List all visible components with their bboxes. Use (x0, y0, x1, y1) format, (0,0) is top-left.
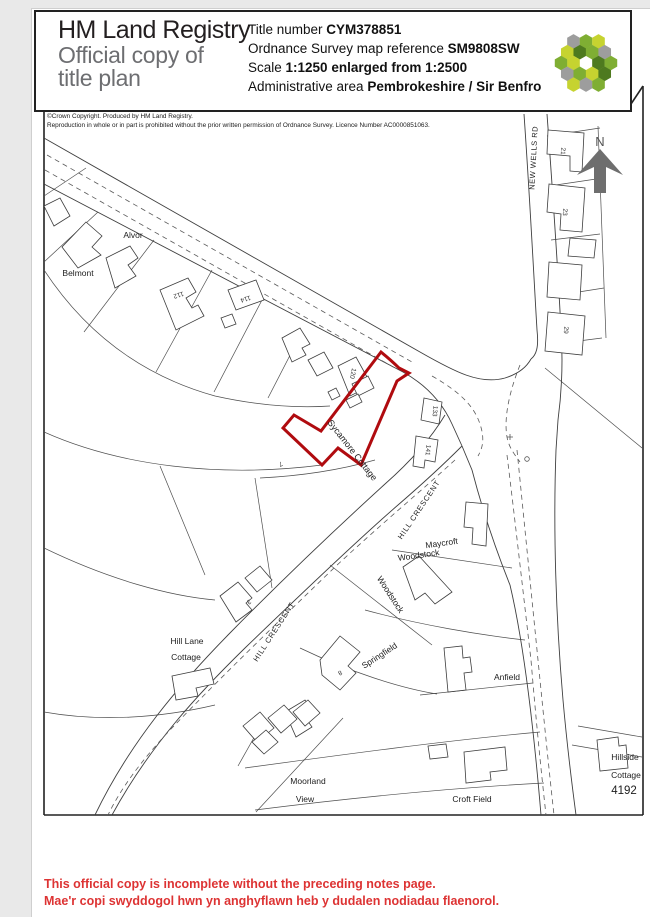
brand-title: HM Land Registry (58, 18, 250, 44)
house-number-7: 7 (277, 460, 283, 468)
north-label: N (595, 134, 604, 149)
label-new-wells-rd: NEW WELLS RD (527, 126, 539, 190)
label-springfield: Springfield (360, 640, 399, 670)
house-number-141: 141 (424, 444, 432, 456)
house-number-21: 21 (559, 147, 566, 155)
footer-warning-english: This official copy is incomplete without… (44, 876, 624, 893)
footer-warning: This official copy is incomplete without… (44, 876, 624, 911)
copyright-line2: Reproduction in whole or in part is proh… (47, 122, 430, 129)
admin-area-value: Pembrokeshire / Sir Benfro (367, 79, 541, 94)
admin-area-label: Administrative area (248, 79, 367, 94)
title-number-label: Title number (248, 22, 326, 37)
os-ref-value: SM9808SW (448, 41, 520, 56)
title-number-value: CYM378851 (326, 22, 401, 37)
copyright-line1: ©Crown Copyright. Produced by HM Land Re… (47, 112, 193, 120)
label-woodstock-2: Woodstock (375, 574, 407, 615)
label-belmont: Belmont (62, 268, 94, 278)
hmlr-hexagon-logo-icon (548, 18, 624, 108)
label-hill-crescent-1: HILL CRESCENT (396, 478, 442, 540)
label-view: View (296, 794, 315, 804)
hmlr-brand: HM Land Registry Official copy of title … (58, 18, 250, 90)
north-arrow: N (577, 134, 623, 193)
label-hillside: Hillside (611, 752, 639, 762)
label-hillside-cottage: Cottage (611, 770, 641, 780)
os-ref-label: Ordnance Survey map reference (248, 41, 448, 56)
label-moorland: Moorland (290, 776, 326, 786)
house-number-133: 133 (431, 405, 439, 417)
label-parcel-number-4192: 4192 (611, 785, 637, 797)
document-type-line2: title plan (58, 67, 250, 90)
road-marker-cross (507, 434, 513, 440)
header-box: HM Land Registry Official copy of title … (34, 10, 632, 112)
house-number-23: 23 (561, 208, 568, 216)
scale-label: Scale (248, 60, 286, 75)
plot-boundaries-layer (44, 126, 642, 812)
label-alvor: Alvor (123, 230, 143, 240)
label-hill-lane-cottage: Cottage (171, 652, 201, 662)
footer-warning-welsh: Mae'r copi swyddogol hwn yn anghyflawn h… (44, 893, 624, 910)
road-marker-circle (525, 457, 530, 462)
label-sycamore-cottage: Sycamore Cottage (325, 418, 379, 483)
label-hill-crescent-2: HILL CRESCENT (251, 600, 296, 663)
label-hill-lane: Hill Lane (170, 636, 203, 646)
north-arrow-icon (577, 149, 623, 193)
copyright-note: ©Crown Copyright. Produced by HM Land Re… (47, 112, 430, 129)
label-croft-field: Croft Field (452, 794, 491, 804)
scale-value: 1:1250 enlarged from 1:2500 (286, 60, 468, 75)
title-info: Title number CYM378851 Ordnance Survey m… (248, 20, 584, 97)
title-plan-map: ©Crown Copyright. Produced by HM Land Re… (0, 0, 650, 917)
house-number-29: 29 (562, 326, 569, 334)
document-type-line1: Official copy of (58, 44, 250, 67)
label-anfield: Anfield (494, 672, 520, 682)
